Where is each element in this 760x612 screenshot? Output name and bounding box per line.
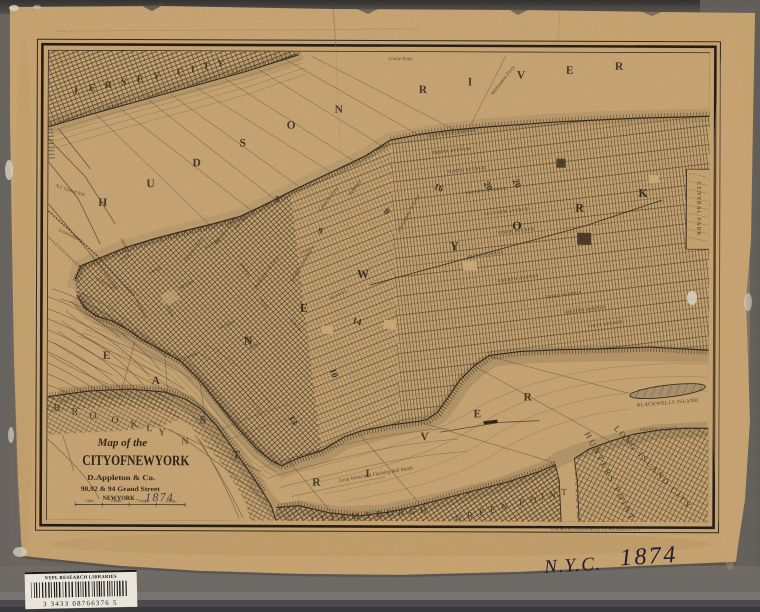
svg-text:1874: 1874 — [619, 542, 678, 571]
svg-text:N.Y.C.: N.Y.C. — [543, 554, 603, 579]
svg-text:3 3433 08766376 5: 3 3433 08766376 5 — [43, 599, 118, 609]
